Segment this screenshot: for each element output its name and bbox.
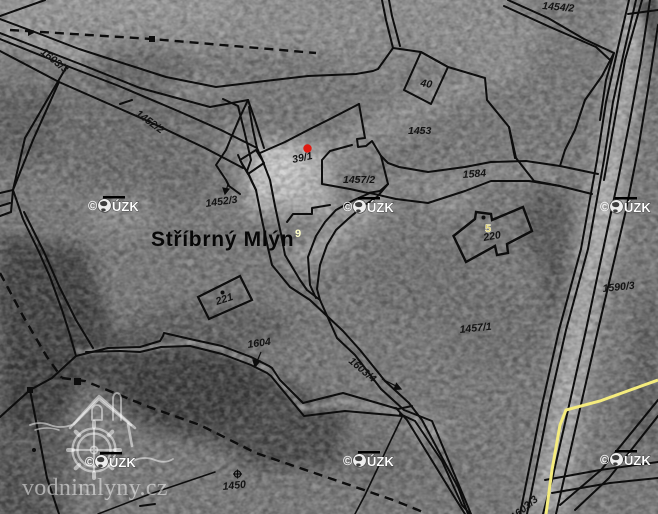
svg-text:©: © xyxy=(343,200,353,214)
svg-text:ÚZK: ÚZK xyxy=(624,200,651,215)
svg-text:40: 40 xyxy=(418,77,433,91)
svg-text:©: © xyxy=(343,454,353,468)
svg-text:ÚZK: ÚZK xyxy=(112,199,139,214)
svg-text:1457/2: 1457/2 xyxy=(343,174,375,186)
svg-text:ÚZK: ÚZK xyxy=(367,454,394,469)
svg-text:ÚZK: ÚZK xyxy=(367,200,394,215)
svg-text:1453: 1453 xyxy=(408,125,432,137)
svg-text:©: © xyxy=(85,455,95,469)
svg-text:1584: 1584 xyxy=(462,167,486,181)
svg-text:©: © xyxy=(600,453,610,467)
svg-text:©: © xyxy=(88,199,98,213)
svg-text:ÚZK: ÚZK xyxy=(109,455,136,470)
svg-text:1450: 1450 xyxy=(222,479,247,493)
svg-text:ÚZK: ÚZK xyxy=(624,453,651,468)
svg-text:vodnimlyny.cz: vodnimlyny.cz xyxy=(22,475,168,501)
svg-text:Stříbrný Mlýn: Stříbrný Mlýn xyxy=(151,228,294,251)
svg-text:9: 9 xyxy=(295,228,301,240)
svg-text:©: © xyxy=(600,200,610,214)
svg-text:5: 5 xyxy=(485,223,491,235)
